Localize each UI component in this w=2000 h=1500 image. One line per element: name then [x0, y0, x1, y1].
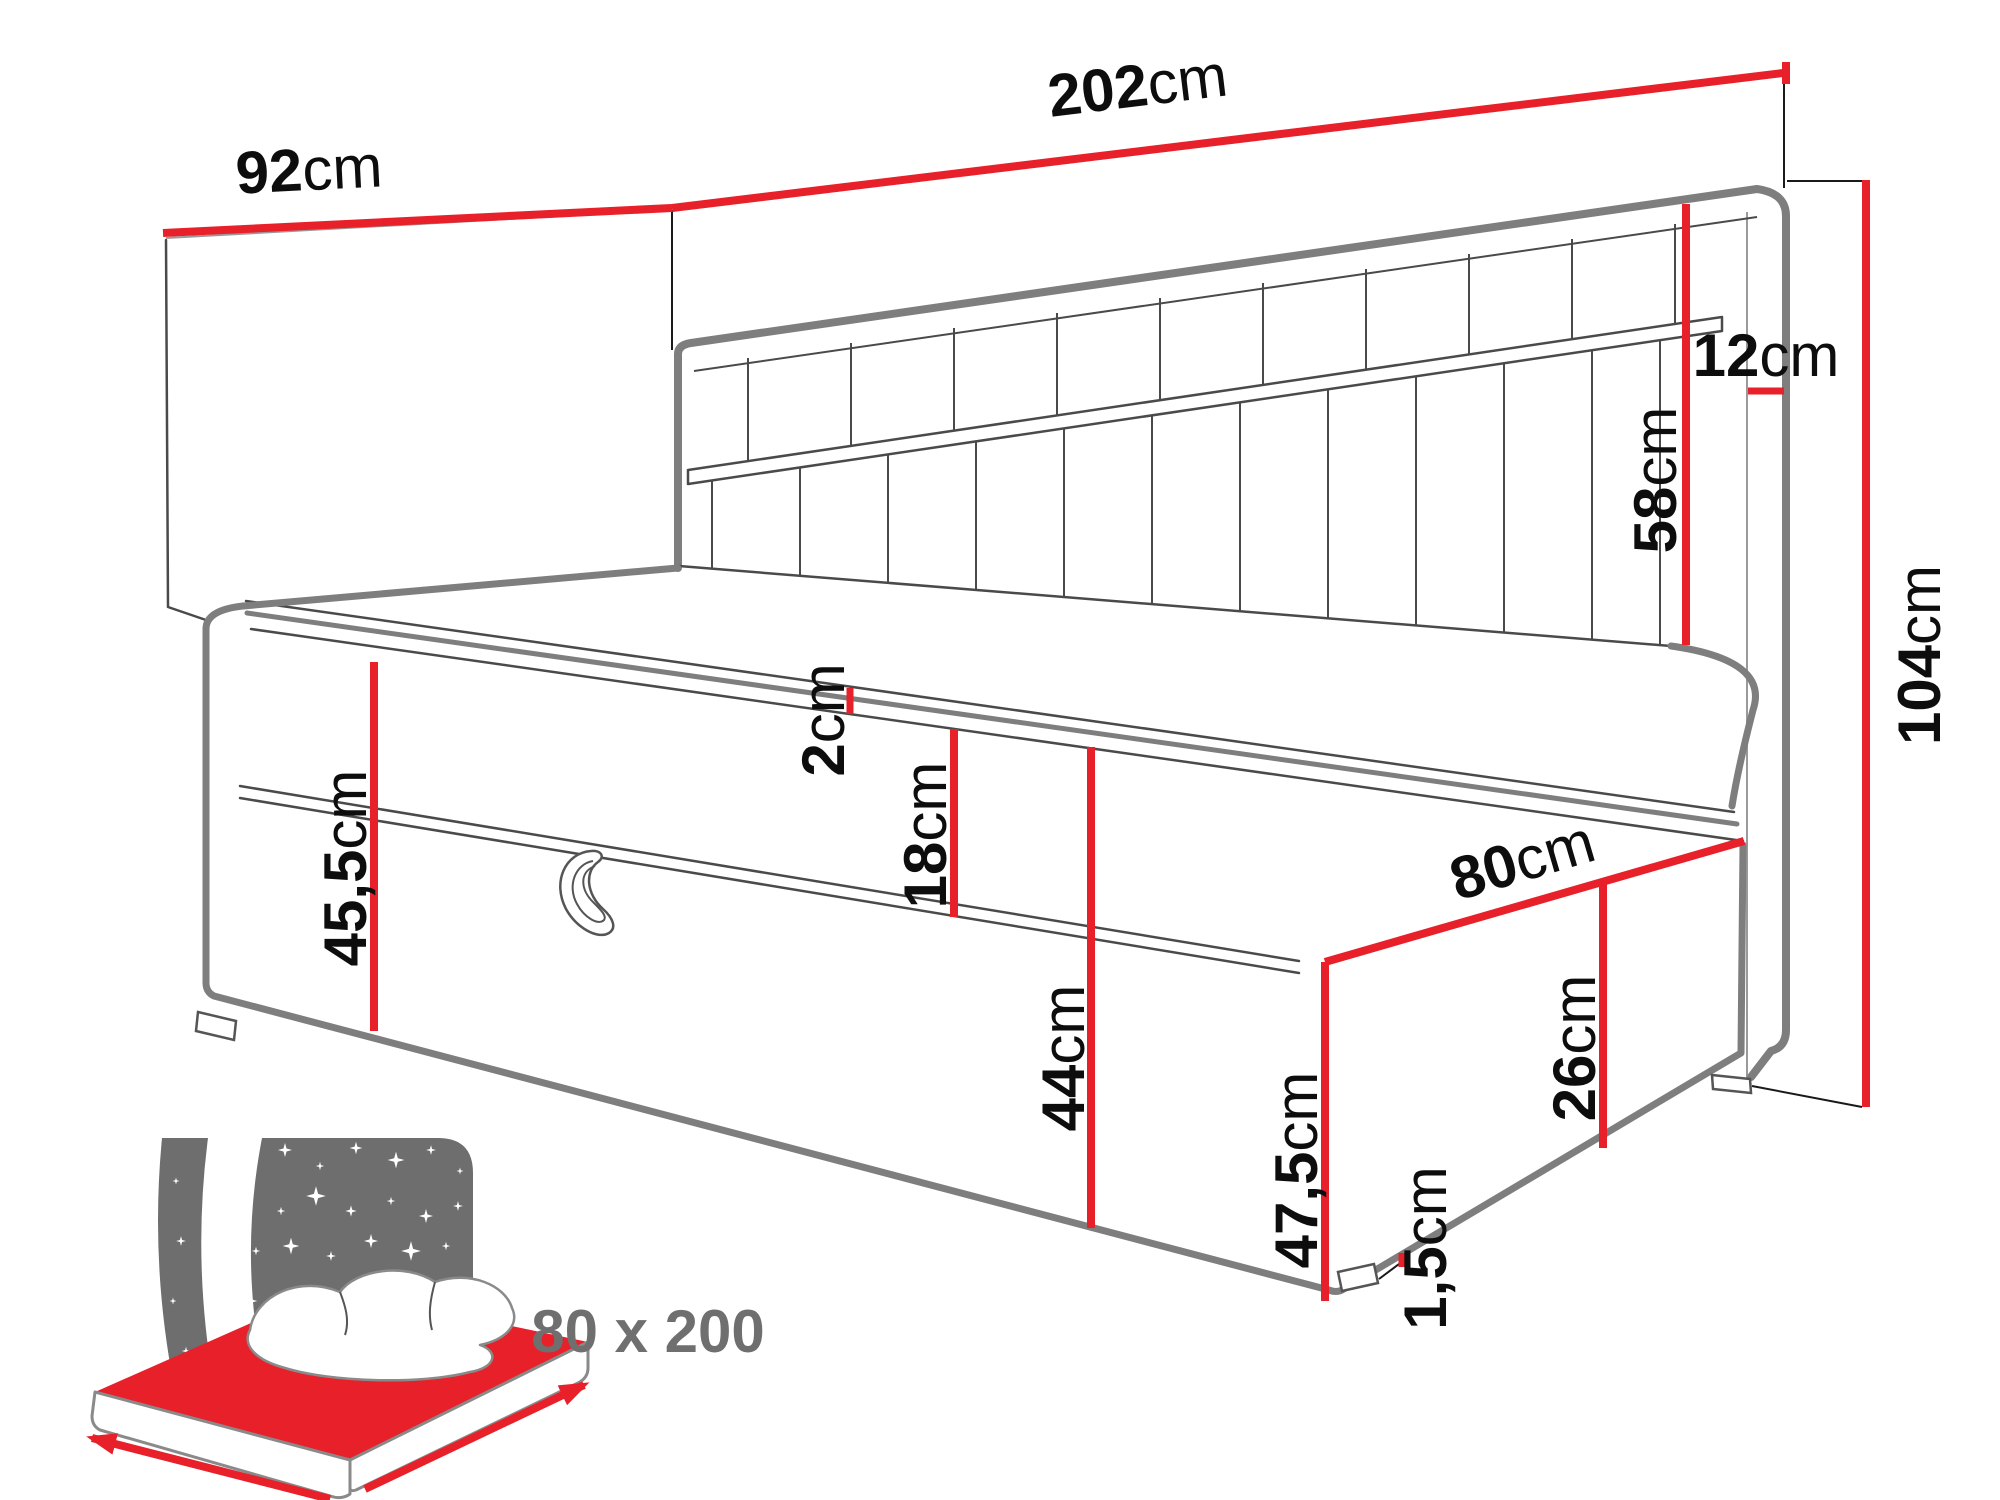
- dim-104-unit: cm: [1886, 565, 1953, 645]
- dim-58-number: 58: [1622, 487, 1689, 554]
- bed-dimension-diagram: 92cm 202cm 12cm 58cm 104cm 45,5cm 2cm 18…: [0, 0, 2000, 1500]
- mattress-size-icon: 80 x 200: [92, 1138, 765, 1499]
- dimension-45-5cm: 45,5cm: [312, 662, 379, 1031]
- dim-80-unit: cm: [1506, 807, 1602, 894]
- dim-44-number: 44: [1030, 1064, 1097, 1131]
- bed-outline-drawing: [166, 66, 1863, 1292]
- dim-18-unit: cm: [892, 762, 959, 842]
- dim-92-unit: cm: [301, 132, 384, 203]
- dim-202-unit: cm: [1144, 42, 1231, 118]
- dimension-1-5cm: 1,5cm: [1392, 1166, 1459, 1329]
- dimension-label-104cm: 104cm: [1886, 565, 1953, 745]
- headboard-outline: [678, 189, 1786, 1077]
- mattress-piping-edge: [247, 613, 1737, 824]
- dim-1-5-unit: cm: [1392, 1166, 1459, 1246]
- icon-size-label: 80 x 200: [531, 1298, 765, 1365]
- dimension-label-1-5cm: 1,5cm: [1392, 1166, 1459, 1329]
- dimension-label-18cm: 18cm: [892, 762, 959, 909]
- dimension-label-58cm: 58cm: [1622, 407, 1689, 554]
- headboard-lower-panel-seams: [712, 341, 1660, 645]
- dim-202-number: 202: [1044, 51, 1151, 130]
- dim-58-unit: cm: [1622, 407, 1689, 487]
- dimension-2cm: 2cm: [790, 663, 857, 776]
- dim-26-unit: cm: [1541, 975, 1608, 1055]
- dim-92-number: 92: [234, 136, 304, 206]
- dimension-12cm: 12cm: [1693, 322, 1840, 391]
- dimension-line-202cm: [672, 62, 1786, 208]
- dimension-label-202cm: 202cm: [1044, 42, 1231, 130]
- dim-44-unit: cm: [1030, 985, 1097, 1065]
- dimension-80cm: 80cm: [1325, 807, 1744, 962]
- dimension-58cm: 58cm: [1622, 204, 1689, 645]
- dimension-label-26cm: 26cm: [1541, 975, 1608, 1122]
- dim-45-5-number: 45,5: [312, 850, 379, 967]
- dimension-label-45-5cm: 45,5cm: [312, 770, 379, 967]
- dimension-label-12cm: 12cm: [1693, 322, 1840, 389]
- front-right-foot: [1338, 1264, 1378, 1291]
- dimension-202cm: 202cm: [672, 42, 1786, 208]
- dim-18-number: 18: [892, 842, 959, 909]
- dim-26-number: 26: [1541, 1055, 1608, 1122]
- dim-47-5-unit: cm: [1263, 1072, 1330, 1152]
- dimension-18cm: 18cm: [892, 729, 959, 917]
- dim-2-unit: cm: [790, 663, 857, 743]
- drawer-seam: [240, 786, 1299, 973]
- headboard-top-inner-line: [694, 217, 1757, 371]
- dim-12-unit: cm: [1759, 322, 1839, 389]
- diagram-canvas: 92cm 202cm 12cm 58cm 104cm 45,5cm 2cm 18…: [0, 0, 2000, 1500]
- side-panel-left-edge: [166, 240, 206, 620]
- headboard-shelf-rail: [688, 317, 1722, 484]
- dim-47-5-number: 47,5: [1263, 1152, 1330, 1269]
- dimension-line-92cm: [163, 208, 672, 233]
- mattress-foot-rounded-corner: [1671, 646, 1755, 806]
- dimension-47-5cm: 47,5cm: [1263, 962, 1330, 1301]
- dimension-44cm: 44cm: [1030, 747, 1097, 1228]
- dimension-26cm: 26cm: [1541, 881, 1608, 1148]
- dimension-label-92cm: 92cm: [234, 132, 384, 206]
- dim-45-5-unit: cm: [312, 770, 379, 850]
- floor-line: [1752, 1086, 1862, 1107]
- dim-2-number: 2: [790, 743, 857, 776]
- mattress-back-edge: [679, 566, 1671, 646]
- dimension-92cm: 92cm: [163, 132, 672, 233]
- dim-12-number: 12: [1693, 322, 1760, 389]
- dimension-label-44cm: 44cm: [1030, 985, 1097, 1132]
- dimension-label-2cm: 2cm: [790, 663, 857, 776]
- dim-104-number: 104: [1886, 644, 1953, 745]
- dimension-104cm: 104cm: [1866, 180, 1953, 1107]
- dimension-label-47-5cm: 47,5cm: [1263, 1072, 1330, 1269]
- front-left-foot: [196, 1012, 236, 1040]
- box-top-edge: [251, 629, 1743, 841]
- dimension-label-80cm: 80cm: [1442, 807, 1602, 913]
- headboard-foot: [1712, 1075, 1751, 1093]
- dim-1-5-number: 1,5: [1392, 1246, 1459, 1329]
